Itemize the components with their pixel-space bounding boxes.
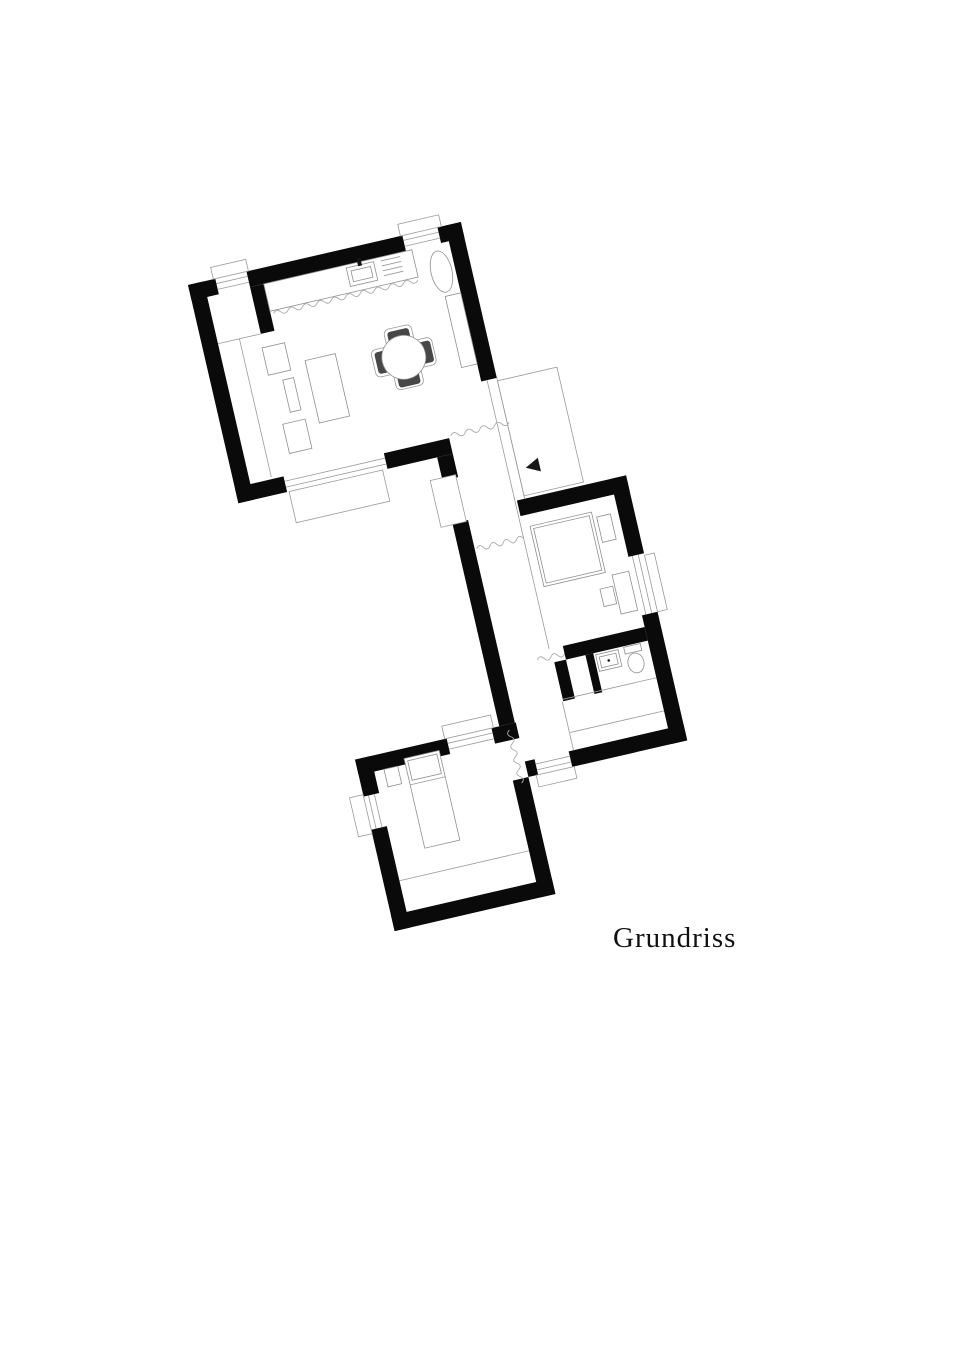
- window-glazing: [449, 739, 494, 749]
- break-line: [476, 536, 524, 552]
- wall: [569, 725, 688, 767]
- floor-plan-drawing: Grundriss: [0, 0, 960, 1358]
- wall: [391, 878, 555, 931]
- terrace: [497, 367, 583, 496]
- glazed-wall: [487, 380, 515, 501]
- plan-title: Grundriss: [613, 922, 736, 954]
- window-glazing: [218, 282, 249, 289]
- desk: [612, 571, 638, 614]
- page: Grundriss: [0, 0, 960, 1358]
- window-glazing: [536, 756, 570, 764]
- door-leaf: [430, 475, 466, 528]
- vestibule-door-line: [218, 334, 261, 344]
- dining-set: [367, 320, 441, 394]
- bedroom: [515, 473, 697, 766]
- wall: [642, 612, 687, 744]
- sofa: [305, 354, 350, 423]
- nightstand: [597, 514, 616, 542]
- break-line: [450, 420, 510, 438]
- floor-line: [570, 711, 664, 733]
- entrance-arrow: [524, 458, 541, 475]
- wall: [452, 520, 514, 726]
- floor-line: [563, 678, 657, 700]
- window-sill: [644, 553, 667, 612]
- bedroom-2: [338, 710, 555, 934]
- entrance-terrace: [487, 364, 584, 501]
- wall: [525, 759, 538, 777]
- nightstand-2: [384, 766, 402, 787]
- window-sill: [211, 259, 249, 279]
- single-bed: [404, 750, 460, 848]
- window-sill: [349, 795, 372, 837]
- shower-wall: [554, 660, 575, 702]
- window-glazing: [405, 238, 440, 246]
- window-sill: [536, 766, 577, 786]
- wall: [491, 722, 519, 743]
- desk-chair: [600, 586, 617, 606]
- floor-line: [399, 851, 529, 881]
- armchair-2: [283, 419, 312, 453]
- armchair: [262, 343, 291, 375]
- window-glazing: [374, 794, 382, 827]
- toilet-bowl: [626, 651, 646, 674]
- living-room-with-kitchen: [185, 210, 518, 534]
- wall: [610, 475, 644, 557]
- oval-basin: [427, 249, 457, 295]
- partition-line: [562, 701, 573, 750]
- terrace-step: [289, 470, 390, 523]
- floor-plan: [185, 185, 724, 944]
- wall: [188, 281, 254, 503]
- double-bed: [530, 512, 605, 587]
- wall: [513, 777, 556, 898]
- coffee-table: [283, 378, 301, 413]
- window-sill: [442, 715, 494, 739]
